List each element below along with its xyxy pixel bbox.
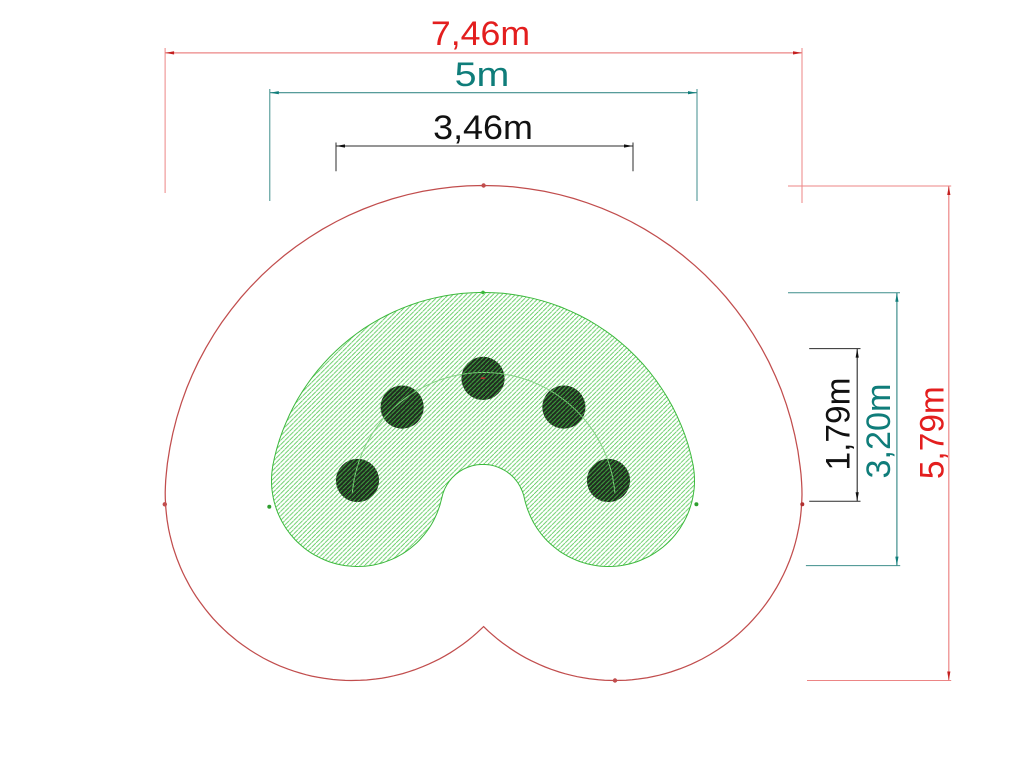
svg-text:3,46m: 3,46m: [433, 109, 533, 147]
svg-text:7,46m: 7,46m: [431, 15, 530, 53]
svg-text:1,79m: 1,79m: [819, 378, 858, 471]
svg-text:5,79m: 5,79m: [913, 386, 952, 479]
svg-text:3,20m: 3,20m: [860, 384, 898, 479]
svg-text:5m: 5m: [455, 56, 510, 94]
